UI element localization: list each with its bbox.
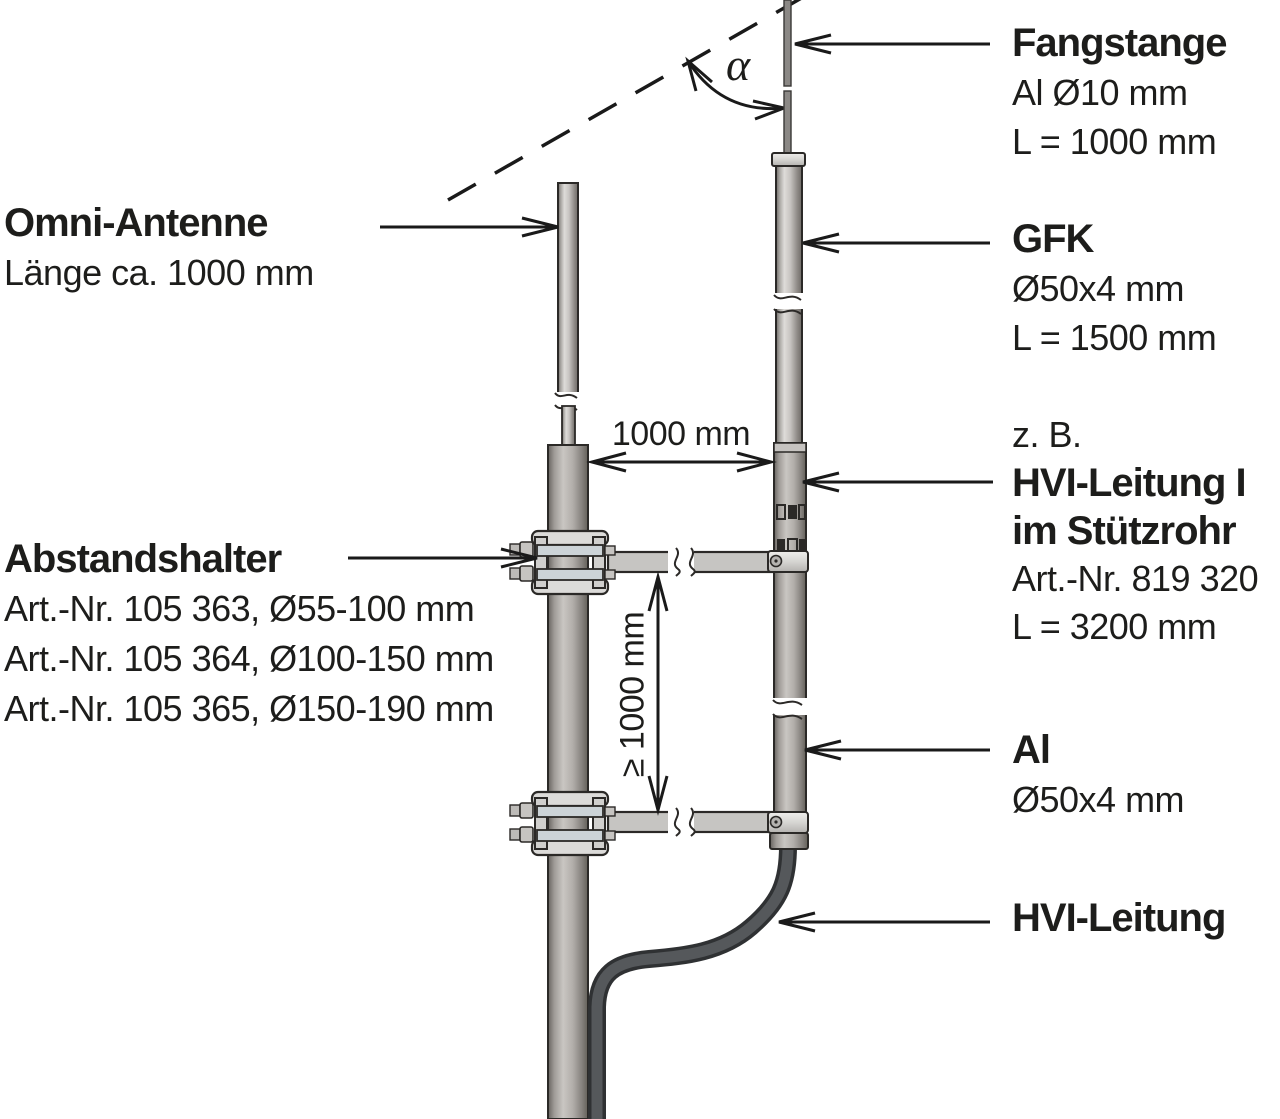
label-fangstange: Fangstange Al Ø10 mm L = 1000 mm <box>1012 19 1226 166</box>
omni-antenne-spec1: Länge ca. 1000 mm <box>4 248 314 297</box>
omni-antenne-arrow <box>380 218 558 236</box>
fangstange-arrow <box>795 35 990 53</box>
omni-antenne-title: Omni-Antenne <box>4 199 314 248</box>
omni-antenna-tube <box>553 183 585 447</box>
strut-collar-top <box>768 551 808 572</box>
al-title: Al <box>1012 726 1184 775</box>
label-hvi-leitung: HVI-Leitung <box>1012 894 1225 943</box>
protection-angle-dashed-line <box>448 0 812 200</box>
al-arrow <box>805 741 990 759</box>
diagram-page: α Fangstange Al Ø10 mm L = 1000 mm GFK Ø… <box>0 0 1280 1119</box>
strut-collar-bottom <box>768 812 808 833</box>
hvi-stuetzrohr-title1: HVI-Leitung I <box>1012 459 1258 507</box>
hvi-stuetzrohr-title2: im Stützrohr <box>1012 507 1258 555</box>
hvi-leitung-arrow <box>779 913 990 931</box>
abstandshalter-title: Abstandshalter <box>4 534 494 584</box>
hvi-stuetzrohr-prefix: z. B. <box>1012 411 1258 459</box>
fangstange-title: Fangstange <box>1012 19 1226 68</box>
gfk-spec2: L = 1500 mm <box>1012 313 1216 362</box>
alpha-angle-label: α <box>726 40 750 89</box>
hvi-stuetzrohr-arrow <box>803 473 993 491</box>
abstandshalter-spec2: Art.-Nr. 105 364, Ø100-150 mm <box>4 634 494 684</box>
hvi-stuetzrohr-spec1: Art.-Nr. 819 320 <box>1012 555 1258 603</box>
abstandshalter-spec3: Art.-Nr. 105 365, Ø150-190 mm <box>4 684 494 734</box>
fangstange-rod <box>784 0 791 155</box>
dim-horizontal-label: 1000 mm <box>601 410 761 459</box>
fangstange-spec2: L = 1000 mm <box>1012 117 1226 166</box>
hvi-cable <box>597 846 788 1119</box>
tube-end-cap <box>770 833 808 849</box>
label-gfk: GFK Ø50x4 mm L = 1500 mm <box>1012 215 1216 362</box>
label-omni-antenne: Omni-Antenne Länge ca. 1000 mm <box>4 199 314 297</box>
label-abstandshalter: Abstandshalter Art.-Nr. 105 363, Ø55-100… <box>4 534 494 734</box>
fangstange-spec1: Al Ø10 mm <box>1012 68 1226 117</box>
al-spec1: Ø50x4 mm <box>1012 775 1184 824</box>
hvi-stuetzrohr-spec2: L = 3200 mm <box>1012 603 1258 651</box>
label-al: Al Ø50x4 mm <box>1012 726 1184 824</box>
spacer-strut-top <box>608 547 772 577</box>
stuetzrohr-tube <box>774 443 806 833</box>
gfk-tube <box>771 153 807 443</box>
gfk-title: GFK <box>1012 215 1216 264</box>
hvi-leitung-title: HVI-Leitung <box>1012 894 1225 943</box>
dim-vertical-label: ≥ 1000 mm <box>609 585 658 805</box>
label-hvi-im-stuetzrohr: z. B. HVI-Leitung I im Stützrohr Art.-Nr… <box>1012 411 1258 651</box>
gfk-arrow <box>803 234 990 252</box>
abstandshalter-spec1: Art.-Nr. 105 363, Ø55-100 mm <box>4 584 494 634</box>
spacer-strut-bottom <box>608 807 772 837</box>
gfk-spec1: Ø50x4 mm <box>1012 264 1216 313</box>
